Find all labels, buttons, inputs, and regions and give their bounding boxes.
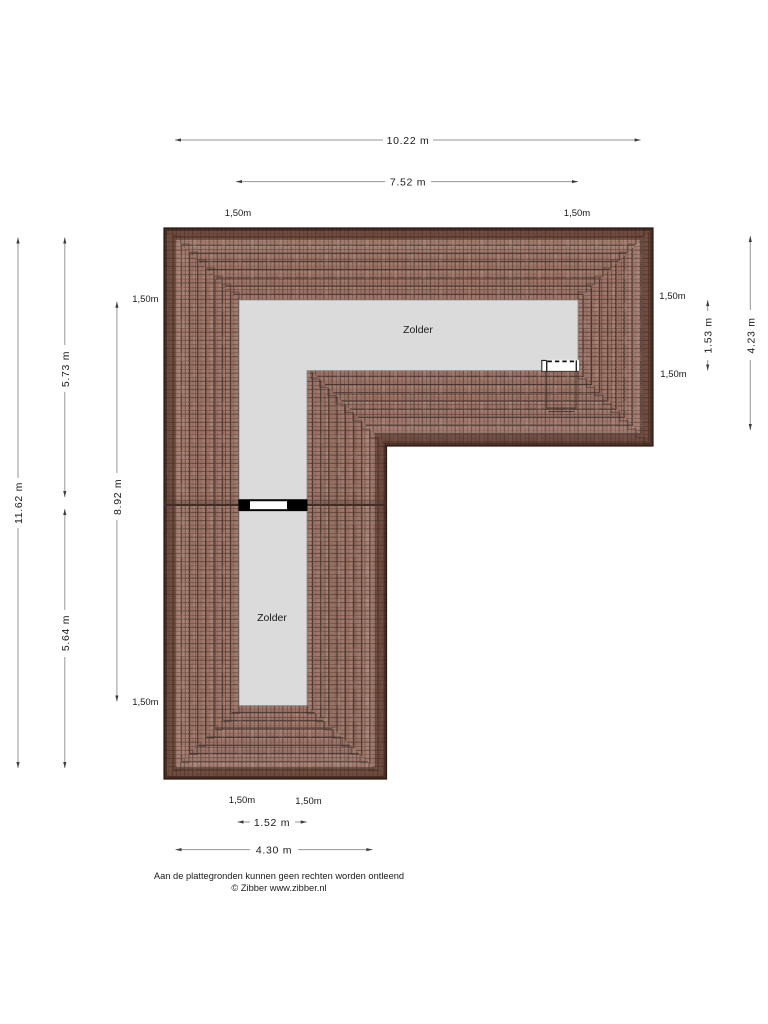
svg-text:1.53 m: 1.53 m <box>703 317 715 353</box>
svg-text:1,50m: 1,50m <box>132 294 158 305</box>
svg-text:5.64 m: 5.64 m <box>60 615 72 651</box>
svg-text:1,50m: 1,50m <box>564 208 590 219</box>
svg-text:1,50m: 1,50m <box>295 796 321 807</box>
svg-text:11.62 m: 11.62 m <box>13 482 25 524</box>
svg-text:4.23 m: 4.23 m <box>745 317 757 353</box>
svg-text:1.52 m: 1.52 m <box>254 817 290 829</box>
svg-text:1,50m: 1,50m <box>132 697 158 708</box>
svg-text:1,50m: 1,50m <box>659 291 685 302</box>
svg-text:5.73 m: 5.73 m <box>60 351 72 387</box>
svg-text:Zolder: Zolder <box>257 612 287 624</box>
svg-text:1,50m: 1,50m <box>225 208 251 219</box>
svg-text:1,50m: 1,50m <box>229 795 255 806</box>
svg-text:Zolder: Zolder <box>403 324 433 336</box>
svg-text:7.52 m: 7.52 m <box>390 177 426 189</box>
svg-text:4.30 m: 4.30 m <box>256 845 292 857</box>
svg-text:© Zibber www.zibber.nl: © Zibber www.zibber.nl <box>231 883 326 893</box>
svg-text:Aan de plattegronden kunnen ge: Aan de plattegronden kunnen geen rechten… <box>154 871 404 881</box>
svg-text:10.22 m: 10.22 m <box>387 135 430 147</box>
svg-text:1,50m: 1,50m <box>660 369 686 380</box>
svg-text:8.92 m: 8.92 m <box>112 479 124 515</box>
